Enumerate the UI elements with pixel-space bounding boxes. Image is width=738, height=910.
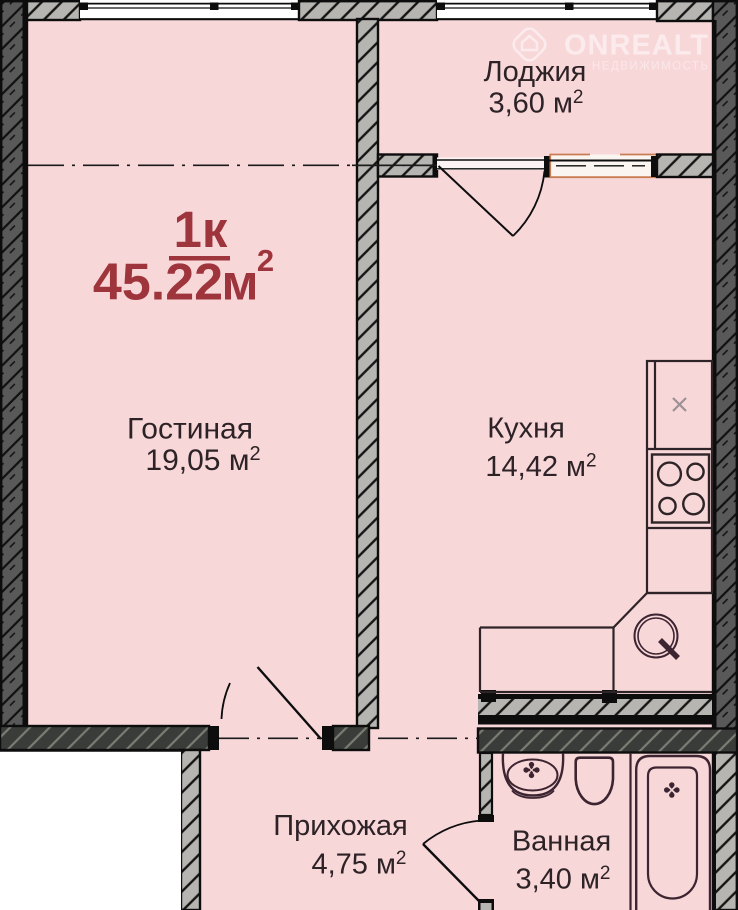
svg-text:НЕДВИЖИМОСТЬ: НЕДВИЖИМОСТЬ <box>592 61 710 73</box>
svg-text:45.22: 45.22 <box>93 254 223 312</box>
svg-text:1к: 1к <box>174 201 228 258</box>
svg-text:19,05 м2: 19,05 м2 <box>145 443 260 477</box>
svg-text:Прихожая: Прихожая <box>273 810 407 842</box>
svg-text:Кухня: Кухня <box>487 413 565 445</box>
svg-text:3,60 м2: 3,60 м2 <box>488 87 583 120</box>
svg-text:2: 2 <box>257 243 274 278</box>
svg-text:3,40 м2: 3,40 м2 <box>515 863 610 896</box>
svg-text:14,42 м2: 14,42 м2 <box>485 451 596 484</box>
svg-text:Гостиная: Гостиная <box>127 413 253 446</box>
svg-text:м: м <box>222 255 259 311</box>
svg-text:4,75 м2: 4,75 м2 <box>311 848 406 881</box>
svg-text:ONREALT: ONREALT <box>564 30 709 62</box>
svg-text:Ванная: Ванная <box>512 826 611 858</box>
